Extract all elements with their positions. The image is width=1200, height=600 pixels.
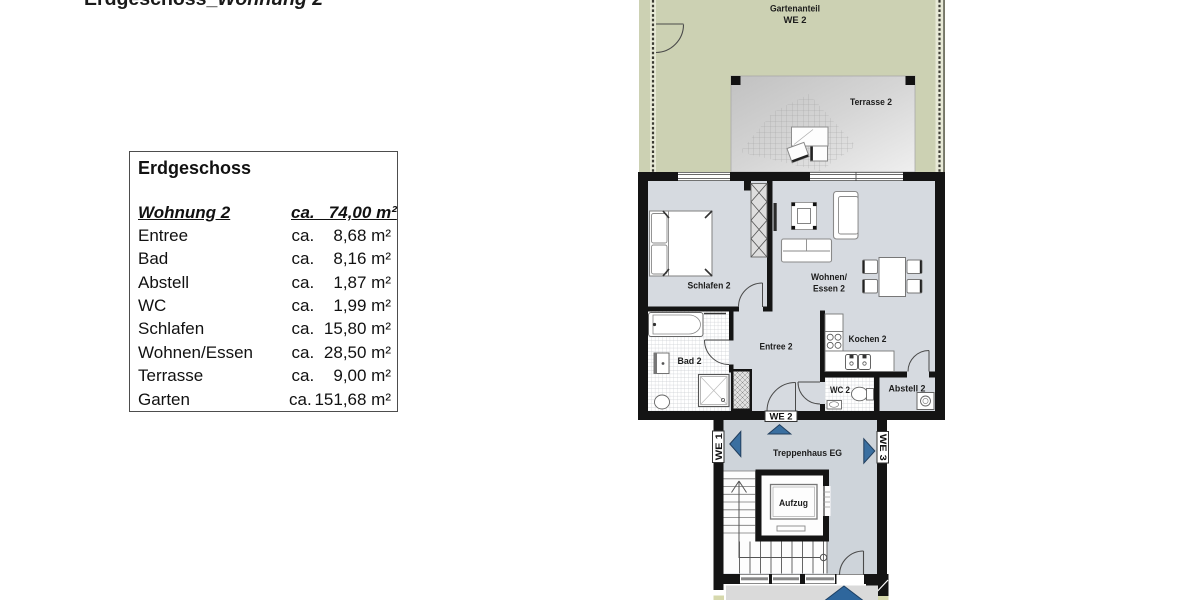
svg-text:WC 2: WC 2: [830, 385, 850, 395]
svg-text:Bad 2: Bad 2: [678, 356, 702, 366]
svg-text:WE 2: WE 2: [770, 412, 793, 423]
svg-text:Treppenhaus EG: Treppenhaus EG: [773, 448, 842, 459]
svg-text:Wohnen/: Wohnen/: [811, 272, 847, 282]
svg-text:Entree 2: Entree 2: [760, 342, 793, 352]
svg-text:Terrasse 2: Terrasse 2: [850, 97, 892, 107]
svg-text:Gartenanteil: Gartenanteil: [770, 4, 820, 14]
svg-text:Kochen 2: Kochen 2: [849, 334, 887, 344]
svg-text:WE 2: WE 2: [784, 15, 807, 25]
svg-text:Abstell 2: Abstell 2: [889, 384, 926, 394]
svg-text:WE 1: WE 1: [714, 432, 725, 460]
svg-text:Aufzug: Aufzug: [779, 498, 808, 509]
svg-text:Essen 2: Essen 2: [813, 284, 845, 294]
svg-text:Schlafen 2: Schlafen 2: [688, 281, 731, 291]
svg-text:WE 3: WE 3: [877, 434, 888, 461]
